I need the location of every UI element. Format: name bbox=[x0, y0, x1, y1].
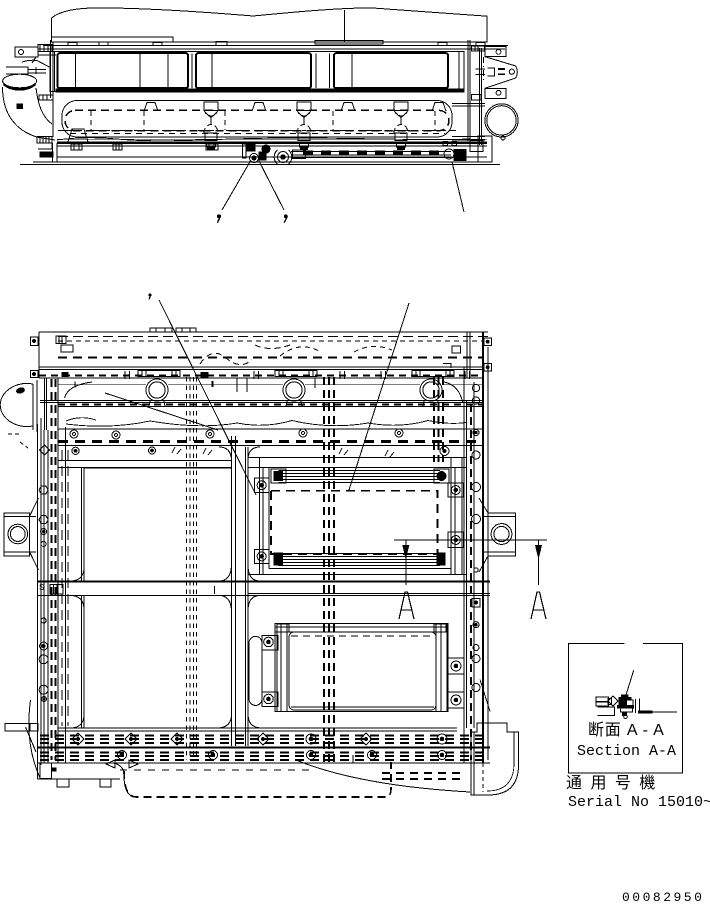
svg-text:断面 A - A: 断面 A - A bbox=[588, 721, 665, 739]
svg-text:Section A-A: Section A-A bbox=[577, 743, 676, 760]
svg-text:Serial No 15010~: Serial No 15010~ bbox=[568, 794, 710, 811]
svg-text:S: S bbox=[39, 583, 44, 593]
svg-text:通 用 号 機: 通 用 号 機 bbox=[566, 774, 657, 792]
svg-text:00082950: 00082950 bbox=[622, 890, 704, 905]
